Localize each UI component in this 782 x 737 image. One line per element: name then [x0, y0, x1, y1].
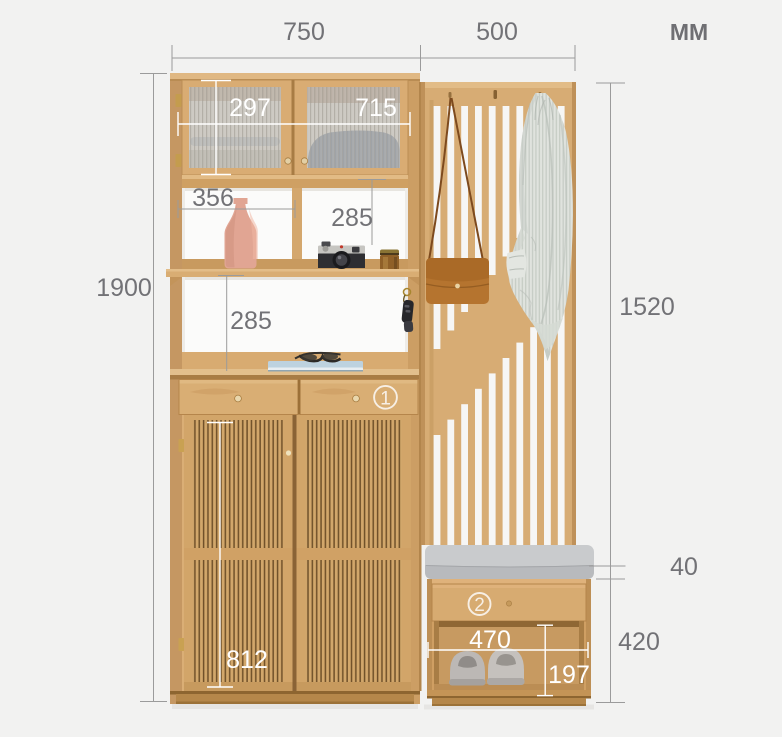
svg-text:356: 356: [192, 184, 234, 212]
svg-text:500: 500: [476, 18, 518, 46]
svg-text:715: 715: [355, 94, 397, 122]
svg-text:MM: MM: [670, 19, 708, 45]
svg-text:285: 285: [331, 204, 373, 232]
svg-text:40: 40: [670, 553, 698, 581]
svg-text:297: 297: [229, 94, 271, 122]
svg-text:2: 2: [474, 595, 485, 616]
svg-text:285: 285: [230, 307, 272, 335]
svg-text:1: 1: [380, 387, 391, 409]
svg-text:420: 420: [618, 628, 660, 656]
svg-text:1900: 1900: [96, 274, 152, 302]
svg-text:812: 812: [226, 646, 268, 674]
svg-text:470: 470: [469, 626, 511, 654]
svg-text:1520: 1520: [619, 293, 675, 321]
svg-text:197: 197: [548, 661, 590, 689]
svg-text:750: 750: [283, 18, 325, 46]
